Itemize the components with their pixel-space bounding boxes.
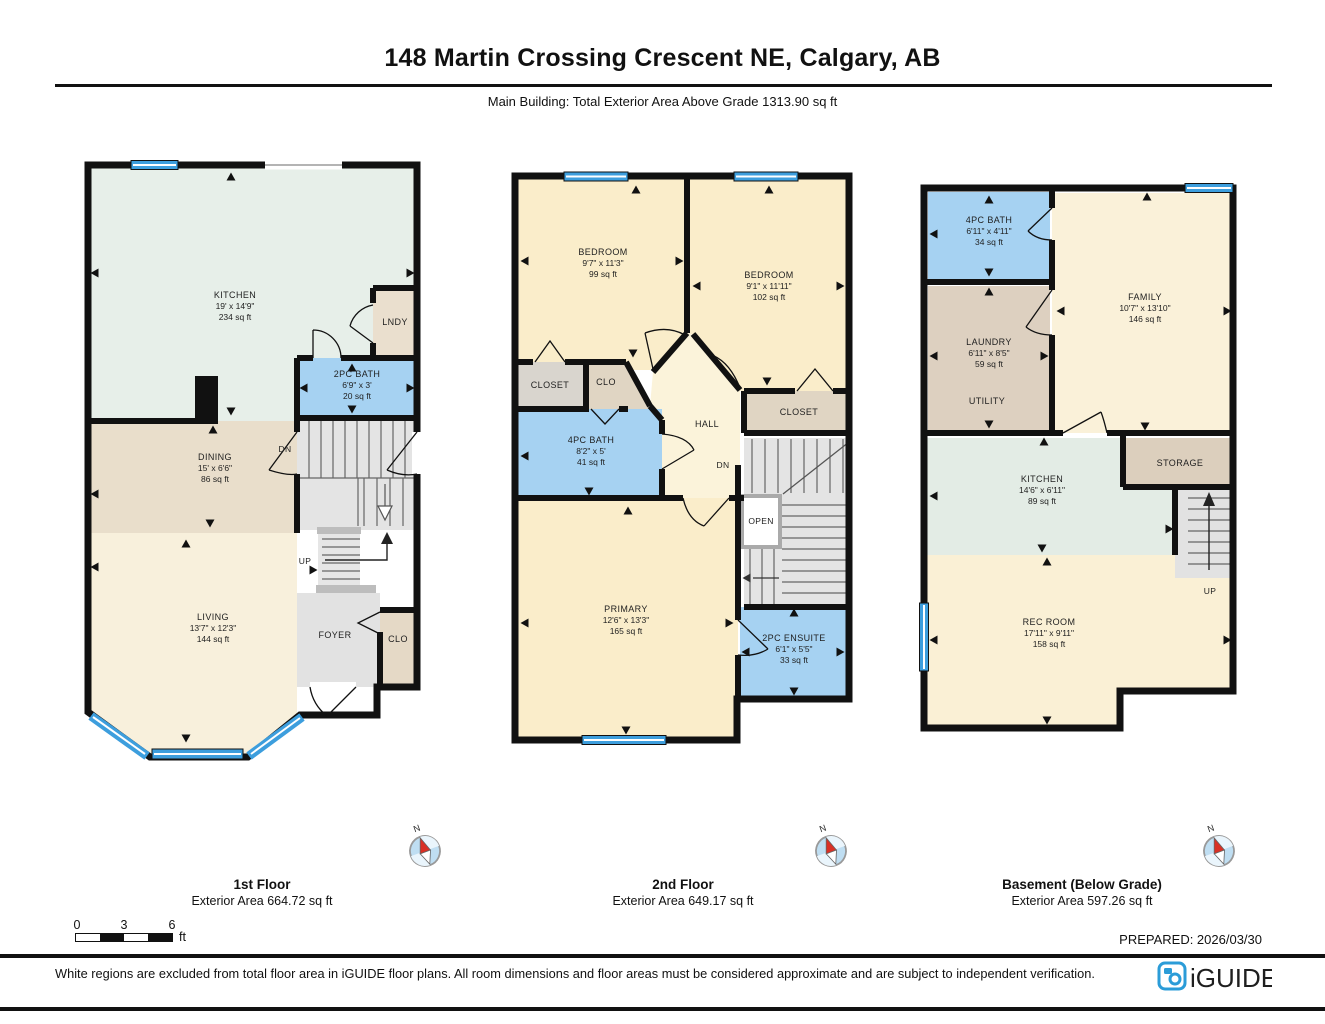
brand-text: iGUIDE: [1190, 963, 1272, 993]
room-dims: 10'7" x 13'10": [1119, 303, 1170, 313]
room-dims: 14'6" x 6'11": [1019, 485, 1065, 495]
room-name: CLO: [596, 377, 616, 387]
room-name: 4PC BATH: [966, 215, 1013, 225]
room-name: BEDROOM: [744, 270, 793, 280]
stair-label-dn: DN: [279, 444, 292, 454]
stair-landing-top: [317, 527, 361, 534]
bottom-border: [0, 1007, 1325, 1011]
room-dims: 17'11" x 9'11": [1024, 628, 1074, 638]
room-rec: [926, 555, 1232, 726]
floor-area-label: Exterior Area 649.17 sq ft: [533, 894, 833, 908]
compass-icon: N: [807, 818, 855, 876]
room-clo-1: [380, 610, 417, 687]
footer-divider: [0, 954, 1325, 958]
scale-tick: 6: [169, 918, 176, 932]
stair-landing-bottom: [316, 585, 376, 593]
title-divider: [55, 84, 1272, 87]
compass-icon: N: [1195, 818, 1243, 876]
room-name: UTILITY: [969, 396, 1005, 406]
iguide-logo: iGUIDE: [1156, 958, 1272, 999]
room-name: FOYER: [318, 630, 351, 640]
room-foyer: [297, 593, 380, 687]
room-area: 146 sq ft: [1129, 314, 1162, 324]
compass-north-label: N: [818, 823, 828, 835]
room-dims: 9'7" x 11'3": [582, 258, 623, 268]
room-dims: 6'11" x 4'11": [966, 226, 1011, 236]
floorplan-2nd-floor: BEDROOM 9'7" x 11'3" 99 sq ft BEDROOM 9'…: [495, 155, 870, 760]
floorplan-basement: 4PC BATH 6'11" x 4'11" 34 sq ft LAUNDRY …: [900, 170, 1250, 740]
room-area: 234 sq ft: [219, 312, 252, 322]
room-area: 89 sq ft: [1028, 496, 1057, 506]
floor-label: Basement (Below Grade): [932, 877, 1232, 892]
stair-label-up: UP: [299, 556, 311, 566]
scale-unit: ft: [179, 930, 186, 944]
prepared-date: PREPARED: 2026/03/30: [900, 932, 1262, 947]
floorplan-page: 148 Martin Crossing Crescent NE, Calgary…: [0, 0, 1325, 1024]
room-name: CLOSET: [780, 407, 819, 417]
room-area: 20 sq ft: [343, 391, 372, 401]
room-name: PRIMARY: [604, 604, 648, 614]
front-door-gap: [310, 682, 356, 691]
scale-tick: 3: [121, 918, 128, 932]
stair-label-up: UP: [1204, 586, 1216, 596]
room-area: 34 sq ft: [975, 237, 1004, 247]
compass-icon: N: [401, 818, 449, 876]
room-dims: 19' x 14'9": [216, 301, 255, 311]
room-area: 102 sq ft: [753, 292, 786, 302]
room-name: KITCHEN: [1021, 474, 1063, 484]
page-title: 148 Martin Crossing Crescent NE, Calgary…: [0, 44, 1325, 73]
room-name: REC ROOM: [1023, 617, 1076, 627]
side-door-gap: [412, 432, 421, 474]
room-dims: 6'11" x 8'5": [968, 348, 1009, 358]
room-dims: 8'2" x 5': [576, 446, 606, 456]
room-dims: 9'1" x 11'11": [746, 281, 791, 291]
room-4pc-bath-bsmt: [928, 192, 1050, 280]
room-living: [88, 533, 297, 757]
compass-north-label: N: [1206, 823, 1216, 835]
room-name: LIVING: [197, 612, 229, 622]
room-area: 99 sq ft: [589, 269, 618, 279]
scale-bar: 0 3 6 ft: [75, 918, 215, 952]
page-subtitle: Main Building: Total Exterior Area Above…: [0, 94, 1325, 109]
wall-stub: [195, 376, 218, 421]
room-name: KITCHEN: [214, 290, 256, 300]
room-dims: 12'6" x 13'3": [603, 615, 650, 625]
room-dims: 6'9" x 3': [342, 380, 372, 390]
room-name: LNDY: [382, 317, 408, 327]
floor-area-label: Exterior Area 597.26 sq ft: [932, 894, 1232, 908]
room-area: 86 sq ft: [201, 474, 230, 484]
stair-label-open: OPEN: [748, 516, 773, 526]
room-name: 2PC ENSUITE: [762, 633, 825, 643]
floor-area-label: Exterior Area 664.72 sq ft: [112, 894, 412, 908]
floor-caption-1: 1st Floor Exterior Area 664.72 sq ft: [112, 877, 412, 908]
room-family: [1052, 193, 1230, 433]
room-area: 144 sq ft: [197, 634, 230, 644]
camera-icon: [1159, 963, 1185, 989]
floor-caption-2: 2nd Floor Exterior Area 649.17 sq ft: [533, 877, 833, 908]
scale-tick: 0: [74, 918, 81, 932]
room-name: CLOSET: [531, 380, 570, 390]
room-area: 165 sq ft: [610, 626, 643, 636]
floor-label: 1st Floor: [112, 877, 412, 892]
room-name: DINING: [198, 452, 232, 462]
room-name: BEDROOM: [578, 247, 627, 257]
room-dims: 6'1" x 5'5": [775, 644, 812, 654]
disclaimer-text: White regions are excluded from total fl…: [55, 966, 1095, 981]
room-name: 4PC BATH: [568, 435, 615, 445]
room-name: HALL: [695, 419, 719, 429]
room-dims: 13'7" x 12'3": [190, 623, 237, 633]
room-area: 59 sq ft: [975, 359, 1004, 369]
room-name: FAMILY: [1128, 292, 1162, 302]
floor-caption-3: Basement (Below Grade) Exterior Area 597…: [932, 877, 1232, 908]
compass-north-label: N: [412, 823, 422, 835]
iguide-logo-graphic: iGUIDE: [1156, 958, 1272, 994]
room-area: 41 sq ft: [577, 457, 606, 467]
scale-bar-segments: [75, 933, 173, 942]
room-name: CLO: [388, 634, 408, 644]
stair-label-dn: DN: [717, 460, 730, 470]
floor-label: 2nd Floor: [533, 877, 833, 892]
room-area: 158 sq ft: [1033, 639, 1066, 649]
room-name: LAUNDRY: [966, 337, 1012, 347]
room-dining: [88, 421, 297, 533]
room-dims: 15' x 6'6": [198, 463, 232, 473]
floorplan-1st-floor: KITCHEN 19' x 14'9" 234 sq ft LNDY 2PC B…: [55, 140, 435, 765]
room-area: 33 sq ft: [780, 655, 809, 665]
room-name: 2PC BATH: [334, 369, 381, 379]
room-name: STORAGE: [1157, 458, 1204, 468]
